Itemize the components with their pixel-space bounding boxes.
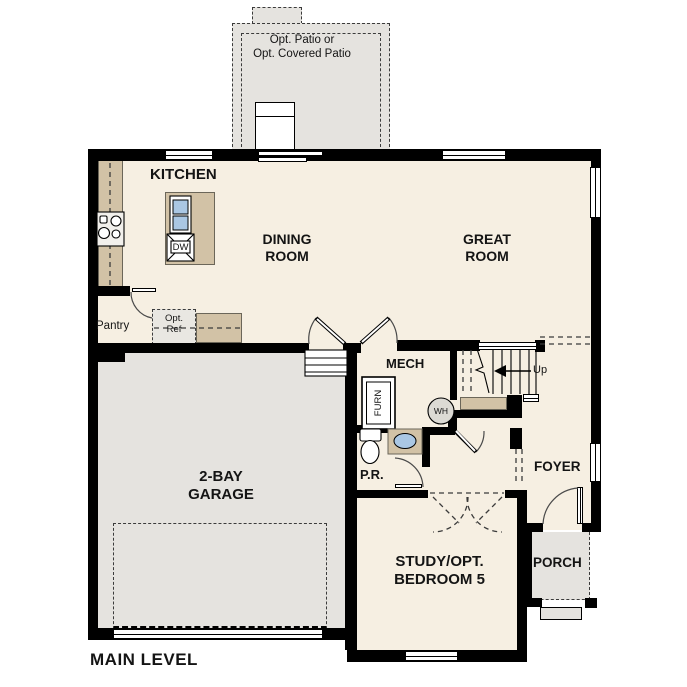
wall-garage-top-left [88, 343, 125, 362]
refrigerator-counter [196, 313, 242, 343]
sliding-patio-door-panel-1 [258, 151, 323, 156]
garage-overhead-door [113, 629, 323, 639]
wall-pantry-stub [88, 286, 130, 296]
porch-post [585, 598, 597, 608]
room-label-garage: 2-BAY GARAGE [185, 468, 257, 504]
stair-base-cabinet [460, 397, 507, 410]
sliding-patio-door-panel-2 [258, 157, 307, 162]
wall-under-stair [455, 410, 522, 418]
stair-top-rail [478, 342, 537, 350]
wall-foyer-stub [510, 428, 522, 449]
wall-mech-top [397, 340, 480, 351]
front-door-panel [577, 487, 583, 524]
garage-bay-outline [113, 523, 327, 629]
wall-porch-left [525, 532, 532, 607]
wall-porch-bottom [525, 598, 542, 607]
room-label-study: STUDY/OPT. BEDROOM 5 [382, 553, 497, 589]
wall-stair-corner [507, 395, 522, 411]
wall-foyer-bottom-right [582, 523, 601, 532]
wall-mech-right [450, 342, 457, 400]
wall-study-top-right [505, 490, 527, 498]
wall-left [88, 149, 98, 640]
room-label-mech: MECH [386, 356, 424, 372]
water-heater-label: WH [432, 406, 450, 416]
patio-chimney-bump [252, 7, 302, 24]
porch-step [540, 607, 582, 620]
wall-hall-top [422, 427, 455, 435]
room-label-porch: PORCH [533, 555, 582, 571]
patio-stoop [255, 102, 295, 152]
opt-ref-label: Opt. Ref [158, 313, 190, 336]
floor-plan: KITCHEN DINING ROOM GREAT ROOM MECH 2-BA… [0, 0, 687, 687]
wall-study-top-left [345, 490, 428, 498]
furnace-label: FURN [361, 384, 397, 422]
plan-title: MAIN LEVEL [90, 650, 198, 670]
room-label-powder: P.R. [360, 467, 384, 483]
kitchen-island [165, 192, 215, 265]
room-label-great: GREAT ROOM [452, 231, 522, 265]
room-label-kitchen: KITCHEN [150, 166, 217, 184]
patio-label-line2: Opt. Covered Patio [242, 48, 362, 62]
room-label-foyer: FOYER [534, 459, 581, 475]
wall-mech-pr [345, 425, 392, 433]
study-window [405, 651, 458, 661]
foyer-window [590, 443, 601, 482]
dishwasher-label: DW [171, 242, 190, 253]
wall-foyer-bottom-left [527, 523, 543, 532]
kitchen-window [165, 150, 213, 160]
great-room-top-window [442, 150, 506, 160]
stair-bottom-rail [523, 394, 539, 402]
stairs-up-label: Up [533, 364, 547, 377]
kitchen-wall-counter [98, 160, 123, 288]
room-label-dining: DINING ROOM [252, 231, 322, 265]
patio-label-line1: Opt. Patio or [242, 34, 362, 48]
great-room-right-window [590, 167, 601, 218]
room-label-pantry: Pantry [96, 320, 129, 334]
